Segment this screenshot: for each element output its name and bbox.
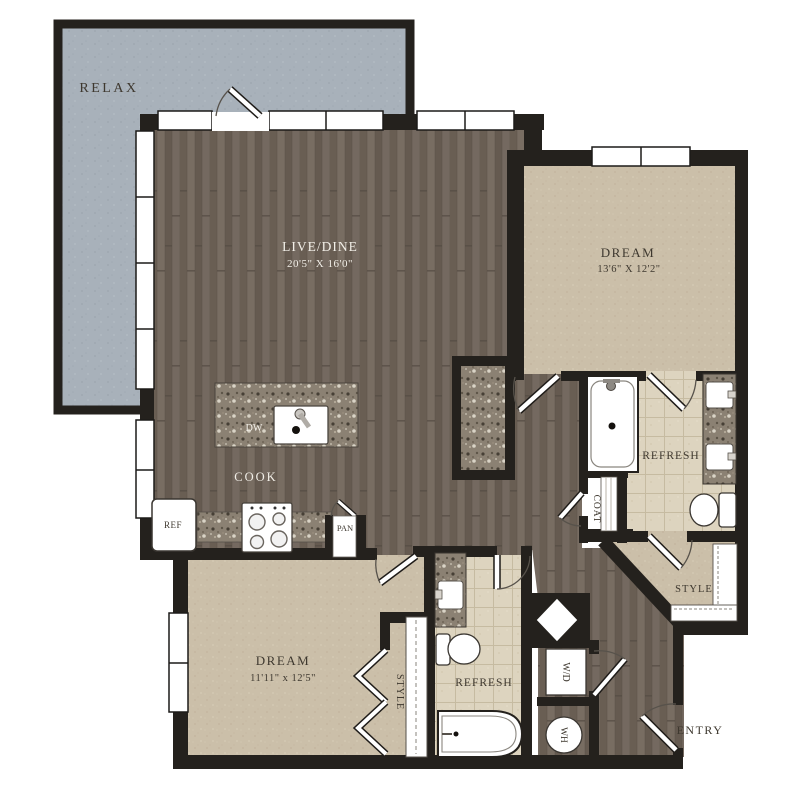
bedroom1-label: DREAM xyxy=(601,245,655,260)
living-dims: 20'5" X 16'0" xyxy=(287,258,353,270)
niche-counter xyxy=(461,366,505,470)
bath2-label: REFRESH xyxy=(455,677,513,689)
dishwasher-label: DW xyxy=(246,423,263,434)
toilet-1 xyxy=(690,493,736,527)
window xyxy=(158,111,212,130)
closet1-label: STYLE xyxy=(675,584,713,595)
floorplan: RELAX LIVE/DINE 20'5" X 16'0" DREAM 13'6… xyxy=(0,0,800,800)
floorplan-svg: RELAX LIVE/DINE 20'5" X 16'0" DREAM 13'6… xyxy=(0,0,800,800)
balcony-label: RELAX xyxy=(79,81,138,96)
entry-label: ENTRY xyxy=(677,723,724,737)
toilet-2 xyxy=(436,634,480,665)
coat-shelf xyxy=(601,477,617,531)
washer-dryer-label: W/D xyxy=(560,662,571,681)
coat-label: COAT xyxy=(591,495,601,524)
cook-label: COOK xyxy=(234,470,277,484)
closet2-label: STYLE xyxy=(394,674,405,710)
window xyxy=(136,131,154,389)
bath1-label: REFRESH xyxy=(642,450,700,462)
refrigerator-label: REF xyxy=(164,520,182,530)
stove xyxy=(242,503,292,552)
vanity-2 xyxy=(435,553,466,627)
kitchen-sink xyxy=(274,406,328,444)
bedroom2-dims: 11'11" x 12'5" xyxy=(250,673,316,684)
living-label: LIVE/DINE xyxy=(282,239,358,254)
bedroom2-label: DREAM xyxy=(256,653,310,668)
bedroom1-dims: 13'6" X 12'2" xyxy=(597,264,660,275)
living-floor xyxy=(152,128,524,550)
pantry-label: PAN xyxy=(337,523,353,533)
vanity-1 xyxy=(703,374,736,484)
bathtub-1 xyxy=(587,376,638,472)
closet2-shelf xyxy=(406,617,427,757)
water-heater-label: WH xyxy=(558,727,568,743)
bathtub-2 xyxy=(438,711,522,757)
